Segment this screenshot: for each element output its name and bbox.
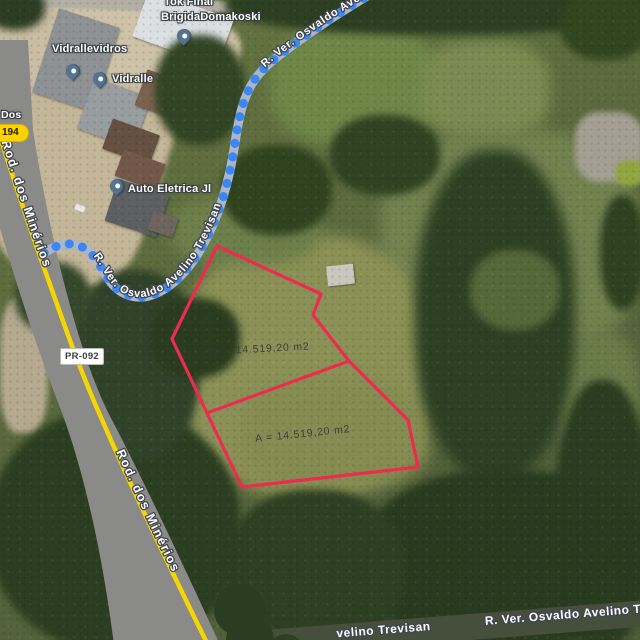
satellite-map[interactable]: Rod. dos Minérios Rod. dos Minérios R. V… [0,0,640,640]
place-label-vidralle[interactable]: Vidralle [112,73,153,85]
area-label-lower: A = 14.519,20 m2 [255,423,351,445]
place-label-auto-eletrica[interactable]: Auto Eletrica Jl [128,183,211,195]
place-label-vidrallevidros[interactable]: Vidrallevidros [52,43,127,55]
map-overlay: Rod. dos Minérios Rod. dos Minérios R. V… [0,0,640,640]
area-label-upper: A = 14.519,20 m2 [214,341,310,358]
highway-asphalt [0,40,220,640]
place-label-tok-final-line1[interactable]: Tok Final [164,0,213,8]
road-label-dos: Dos [1,109,21,121]
place-label-tok-final-line2[interactable]: BrigidaDomakoski [161,11,261,23]
trees-over-road [214,584,266,636]
parcel-boundary [172,246,418,487]
road-shield-194: 194 [0,124,29,142]
road-shield-pr092: PR-092 [60,348,104,365]
parcel-divider [207,361,349,413]
